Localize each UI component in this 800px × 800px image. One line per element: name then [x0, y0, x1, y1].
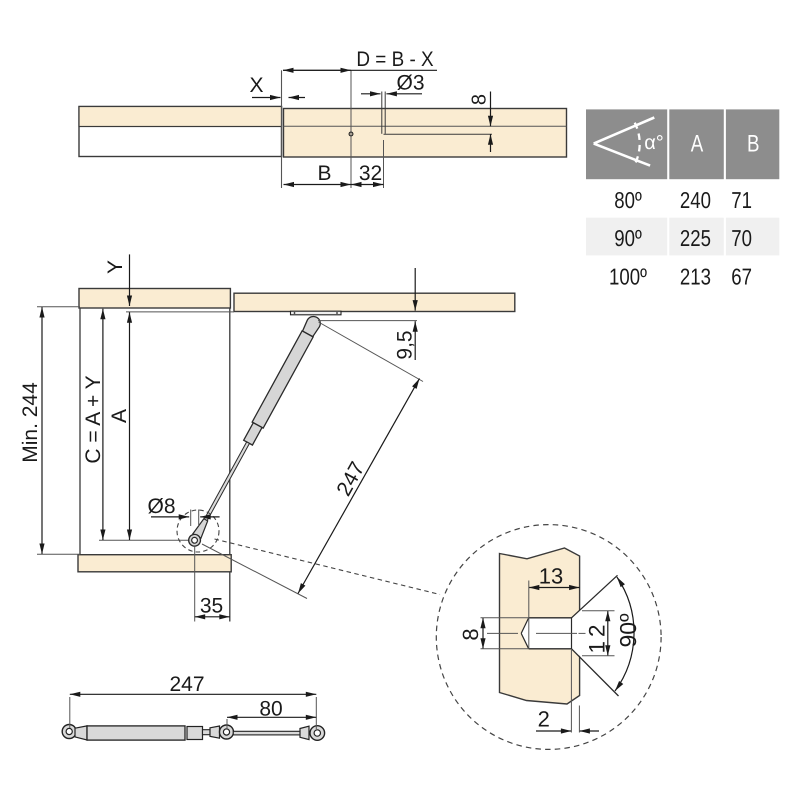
svg-text:Ø3: Ø3 [396, 72, 424, 95]
svg-text:Y: Y [104, 260, 127, 274]
svg-text:D = B - X: D = B - X [356, 48, 433, 71]
svg-text:13: 13 [539, 564, 563, 589]
svg-text:247: 247 [332, 458, 369, 500]
svg-text:90º: 90º [614, 225, 642, 251]
svg-text:35: 35 [200, 595, 223, 618]
svg-text:67: 67 [731, 264, 752, 290]
svg-text:32: 32 [359, 162, 382, 185]
svg-text:9,5: 9,5 [394, 330, 417, 359]
svg-text:240: 240 [680, 187, 711, 213]
svg-text:8: 8 [469, 94, 491, 105]
svg-text:225: 225 [680, 225, 711, 251]
svg-text:B: B [317, 162, 331, 185]
svg-text:A: A [108, 409, 131, 423]
svg-text:12: 12 [585, 620, 610, 653]
svg-text:A: A [691, 131, 703, 158]
svg-text:90º: 90º [615, 613, 641, 648]
svg-text:B: B [747, 131, 759, 158]
svg-text:2: 2 [538, 707, 550, 732]
svg-text:213: 213 [680, 264, 711, 290]
svg-text:C = A + Y: C = A + Y [82, 375, 105, 463]
svg-text:Min. 244: Min. 244 [19, 382, 42, 463]
svg-text:247: 247 [169, 673, 204, 696]
svg-text:100º: 100º [609, 264, 647, 290]
svg-text:8: 8 [458, 628, 483, 640]
svg-text:X: X [249, 74, 263, 97]
svg-text:71: 71 [731, 187, 752, 213]
svg-text:α°: α° [644, 132, 664, 154]
svg-text:80º: 80º [614, 187, 642, 213]
svg-text:70: 70 [731, 225, 752, 251]
svg-text:Ø8: Ø8 [147, 495, 175, 518]
